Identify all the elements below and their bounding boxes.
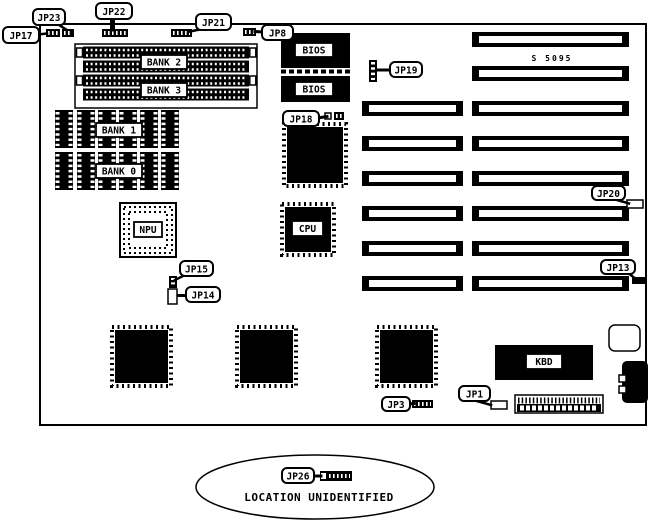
bios-bottom-label-text: BIOS (303, 85, 326, 96)
bank1-label-text: BANK 1 (102, 126, 137, 137)
qfp-chip (237, 327, 296, 386)
simm-clip (250, 48, 256, 57)
jp8-callout: JP8 (255, 25, 293, 40)
jp22-callout: JP22 (96, 3, 132, 29)
jp3-callout: JP3 (382, 397, 414, 411)
bios-chips: BIOS BIOS (281, 33, 350, 102)
simm-clip (77, 76, 83, 85)
isa-slot-short (362, 276, 463, 291)
isa-slot-short (362, 101, 463, 116)
keyboard-connector (619, 361, 648, 403)
jp20-callout: JP20 (592, 186, 629, 204)
isa-slot-short (362, 136, 463, 151)
isa-slot-long (472, 32, 629, 47)
isa-slot-long (472, 66, 629, 81)
jp19-callout: JP19 (378, 62, 422, 77)
jp1-jumper (491, 401, 507, 409)
bank0-label-text: BANK 0 (102, 167, 137, 178)
svg-text:JP20: JP20 (597, 189, 620, 200)
bank2-label-text: BANK 2 (147, 58, 181, 69)
isa-slot-long (472, 206, 629, 221)
svg-text:JP23: JP23 (38, 13, 61, 24)
isa-slot-long (472, 171, 629, 186)
dram-chip (77, 110, 95, 148)
dram-chip (55, 152, 73, 190)
isa-slot-short (362, 241, 463, 256)
jp19-jumper (369, 60, 377, 82)
battery-holder (609, 325, 640, 351)
isa-slot-long (472, 136, 629, 151)
jp15-jumper (169, 276, 177, 288)
svg-text:JP13: JP13 (607, 263, 630, 274)
cpu-chip: CPU (282, 204, 334, 255)
svg-text:JP1: JP1 (466, 390, 483, 401)
footer-ellipse (196, 455, 434, 519)
npu-label-text: NPU (139, 225, 156, 236)
jp21-callout: JP21 (190, 14, 231, 32)
jp1-callout: JP1 (459, 386, 491, 405)
jp14-jumper (168, 289, 177, 304)
svg-text:JP18: JP18 (290, 115, 313, 126)
motherboard-jumper-diagram: S 5095 BANK 2 BANK 3 BANK 1 BANK 0 BIO (0, 0, 653, 522)
cpu-label-text: CPU (299, 224, 316, 235)
svg-text:JP26: JP26 (287, 472, 310, 483)
power-connector (515, 395, 603, 413)
svg-text:JP3: JP3 (387, 400, 404, 411)
jp15-callout: JP15 (175, 261, 213, 280)
svg-text:JP21: JP21 (202, 18, 225, 29)
isa-slot-short (362, 171, 463, 186)
kbd-label-text: KBD (535, 357, 552, 368)
svg-text:JP22: JP22 (103, 7, 126, 18)
dram-chip (161, 110, 179, 148)
dram-chip (77, 152, 95, 190)
simm-clip (77, 48, 83, 57)
bank3-label-text: BANK 3 (147, 86, 182, 97)
bank2-label: BANK 2 (141, 55, 187, 69)
svg-text:JP19: JP19 (395, 66, 418, 77)
isa-slot-long (472, 241, 629, 256)
svg-text:JP14: JP14 (192, 291, 215, 302)
svg-text:JP17: JP17 (10, 31, 33, 42)
jp18-callout: JP18 (283, 111, 327, 126)
isa-slot-long (472, 101, 629, 116)
qfp-chip (377, 327, 436, 386)
bank3-label: BANK 3 (141, 83, 187, 97)
chipset-chip (284, 124, 346, 186)
isa-slot-short (362, 206, 463, 221)
bios-top-label-text: BIOS (303, 46, 326, 57)
dram-banks: BANK 1 BANK 0 (55, 110, 179, 190)
footer-note: JP26 LOCATION UNIDENTIFIED (196, 455, 434, 519)
npu-socket: NPU (120, 203, 176, 257)
jp23-callout: JP23 (33, 9, 67, 30)
dram-chip (55, 110, 73, 148)
board-id-text: S 5095 (532, 54, 573, 63)
simm-clip (250, 76, 256, 85)
jp26-jumper (320, 471, 352, 481)
dram-chip (161, 152, 179, 190)
isa-slot-long (472, 276, 629, 291)
svg-text:JP8: JP8 (269, 29, 286, 40)
jp26-callout: JP26 (282, 468, 321, 483)
kbd-controller-chip: KBD (495, 345, 593, 380)
bank1-label: BANK 1 (96, 123, 142, 137)
svg-text:JP15: JP15 (185, 265, 208, 276)
jp21-jumper (171, 29, 192, 37)
qfp-chip (112, 327, 171, 386)
jp14-callout: JP14 (178, 287, 220, 302)
footer-note-text: LOCATION UNIDENTIFIED (244, 491, 394, 504)
simm-bank-block: BANK 2 BANK 3 (75, 44, 257, 108)
bank0-label: BANK 0 (96, 164, 142, 178)
